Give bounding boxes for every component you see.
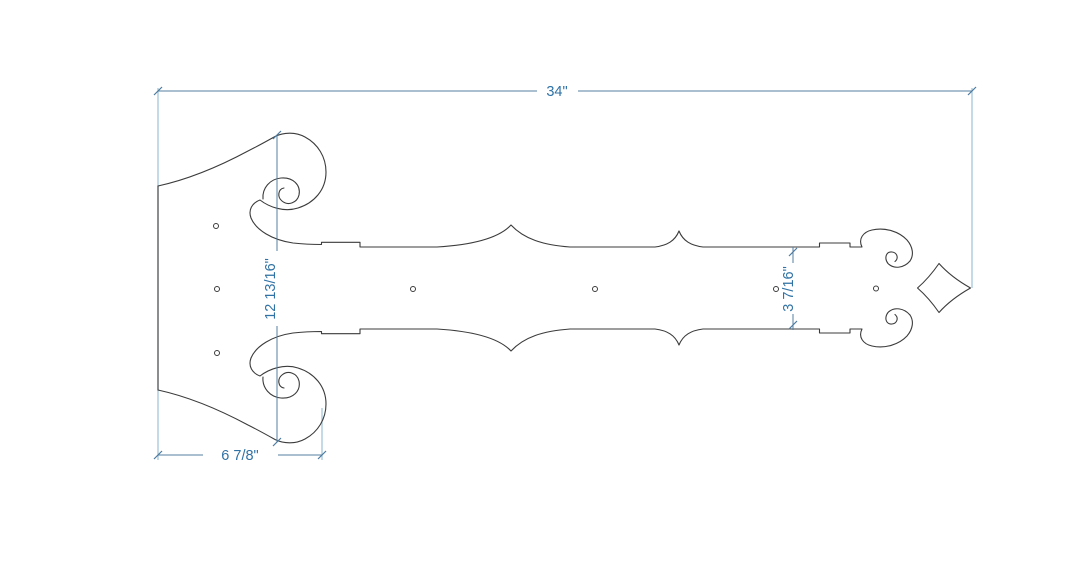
dim-label-overall-length: 34" — [546, 84, 567, 100]
screw-hole — [411, 287, 416, 292]
screw-hole — [215, 351, 220, 356]
part-bottom-outline — [158, 315, 912, 443]
dim-label-plate-height: 12 13/16" — [263, 258, 279, 320]
scroll-eye-top — [263, 178, 299, 204]
screw-hole — [593, 287, 598, 292]
screw-hole — [774, 287, 779, 292]
fleur-diamond-tip — [918, 264, 971, 313]
screw-hole — [215, 287, 220, 292]
part-outline — [158, 133, 971, 443]
extension-lines — [158, 88, 972, 460]
dim-label-strap-width: 3 7/16" — [781, 266, 797, 311]
fleur-eye-bottom — [886, 309, 910, 324]
screw-hole — [874, 286, 879, 291]
scroll-eye-bottom — [263, 373, 299, 399]
screw-hole — [214, 224, 219, 229]
part-top-outline — [158, 133, 912, 261]
hinge-drawing: 34" 12 13/16" 6 7/8" 3 7/16" — [0, 0, 1077, 583]
dim-label-plate-width: 6 7/8" — [221, 448, 258, 464]
fleur-eye-top — [886, 252, 910, 267]
dimension-labels: 34" 12 13/16" 6 7/8" 3 7/16" — [221, 84, 797, 464]
drawing-canvas: 34" 12 13/16" 6 7/8" 3 7/16" — [0, 0, 1077, 583]
